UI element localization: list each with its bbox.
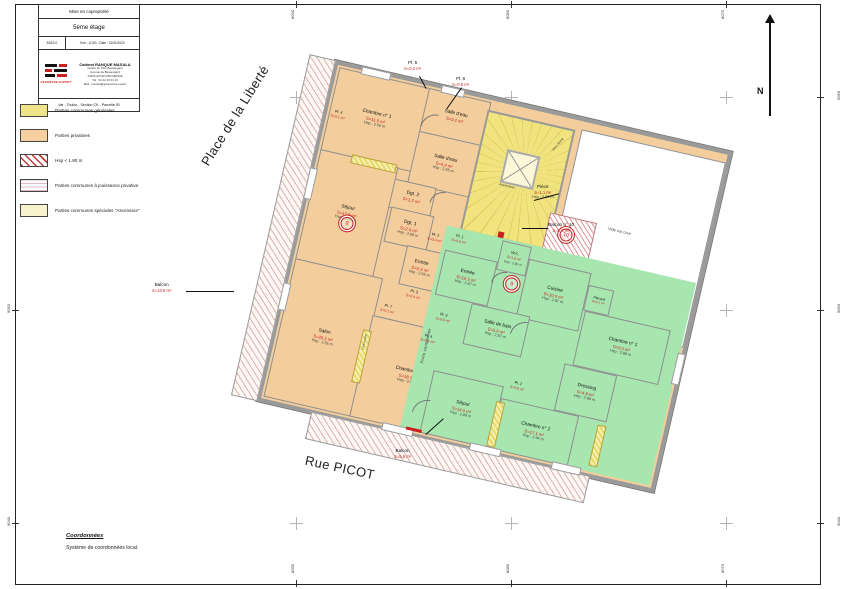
legend-swatch-hsp: [20, 154, 48, 167]
grid-label-x1-top: 8090: [290, 10, 295, 19]
legend-swatch-jouissance: [20, 179, 48, 192]
grid-label-x3-bottom: 8070: [720, 564, 725, 573]
legend-item: Parties communes à jouissance privative: [20, 179, 138, 192]
callout-pl6: Pl. 6 S=0.5 m²: [452, 76, 469, 87]
grid-label-x3-top: 8070: [720, 10, 725, 19]
legend-item: Hsp < 1.80 m: [20, 154, 82, 167]
grid-cross: [505, 517, 518, 530]
callout-balcon-10: Balcon n° 10 S=1.3 m²: [548, 222, 574, 233]
legend-label: Parties communes générales: [55, 108, 115, 113]
grid-tick: [296, 1, 297, 8]
logo-label: GÉOMÈTRE-EXPERT: [40, 80, 71, 84]
callout-balcon-left: Balcon S=10.6 m²: [152, 282, 171, 293]
grid-label-y3-right: 9040: [836, 517, 841, 526]
floor-title: 5ème étage: [39, 19, 139, 37]
dossier-row: 5323.0 Ech : 1/100 - Date : 21/01/2020: [39, 37, 139, 50]
grid-cross: [720, 91, 733, 104]
address-line: Mail : contact@geometres.expert: [84, 83, 126, 87]
callout-pl5: Pl. 5 S=0.2 m²: [404, 60, 421, 71]
north-arrow-line: [769, 20, 771, 116]
scale-date: Ech : 1/100 - Date : 21/01/2020: [66, 41, 139, 45]
north-label: N: [757, 86, 764, 96]
grid-label-y1-left: 9050: [6, 304, 11, 313]
grid-tick: [817, 310, 824, 311]
grid-tick: [12, 310, 19, 311]
grid-label-y1-right: 9060: [836, 91, 841, 100]
legend-label: Parties privatives: [55, 133, 90, 138]
legend-label: Hsp < 1.80 m: [55, 158, 82, 163]
grid-cross: [720, 304, 733, 317]
coordinates-note-text: Système de coordonnées local.: [66, 545, 138, 551]
legend-item: Parties communes spéciales "Ascenseur": [20, 204, 140, 217]
firm-address: Cabinet RANQUE MASALA Centre du Parc Bea…: [72, 51, 138, 97]
grid-tick: [511, 580, 512, 587]
legend-label: Parties communes à jouissance privative: [55, 183, 138, 188]
leader-line: [522, 228, 548, 229]
dossier-number: 5323.0: [39, 37, 66, 49]
project-title: Mise en copropriété: [39, 5, 139, 19]
grid-tick: [296, 580, 297, 587]
leader-line: [186, 291, 234, 292]
grid-label-x2-bottom: 8080: [505, 564, 510, 573]
coordinates-note-title: Coordonnées: [66, 533, 103, 539]
grid-label-y2-right: 9050: [836, 304, 841, 313]
legend-label: Parties communes spéciales "Ascenseur": [55, 208, 140, 213]
grid-tick: [817, 523, 824, 524]
logo-icon: [45, 64, 67, 79]
legend-swatch-communes-generales: [20, 104, 48, 117]
closet-pl3-orange: Pl. 3S=0.4 m²: [405, 288, 421, 300]
closet-pl7-orange: Pl. 7S=0.1 m²: [380, 303, 396, 315]
grid-tick: [511, 1, 512, 8]
grid-tick: [726, 580, 727, 587]
callout-balcon-bottom: Balcon S=5.6 m²: [394, 448, 411, 459]
grid-label-x1-bottom: 8090: [290, 564, 295, 573]
title-block: Mise en copropriété 5ème étage 5323.0 Ec…: [38, 4, 140, 112]
geometre-expert-logo: GÉOMÈTRE-EXPERT: [40, 51, 72, 97]
legend-item: Parties communes générales: [20, 104, 115, 117]
closet-pl2-orange: Pl. 2S=0.4 m²: [427, 232, 443, 244]
grid-label-x2-top: 8080: [505, 10, 510, 19]
grid-cross: [720, 517, 733, 530]
plan-sheet: 8090 8080 8070 8090 8080 8070 9050 9040 …: [0, 0, 850, 589]
grid-tick: [817, 97, 824, 98]
legend-item: Parties privatives: [20, 129, 90, 142]
grid-tick: [12, 523, 19, 524]
legend-swatch-ascenseur: [20, 204, 48, 217]
grid-cross: [290, 517, 303, 530]
grid-label-y2-left: 9040: [6, 517, 11, 526]
grid-tick: [726, 1, 727, 8]
legend-swatch-privatives: [20, 129, 48, 142]
firm-row: GÉOMÈTRE-EXPERT Cabinet RANQUE MASALA Ce…: [39, 50, 139, 99]
